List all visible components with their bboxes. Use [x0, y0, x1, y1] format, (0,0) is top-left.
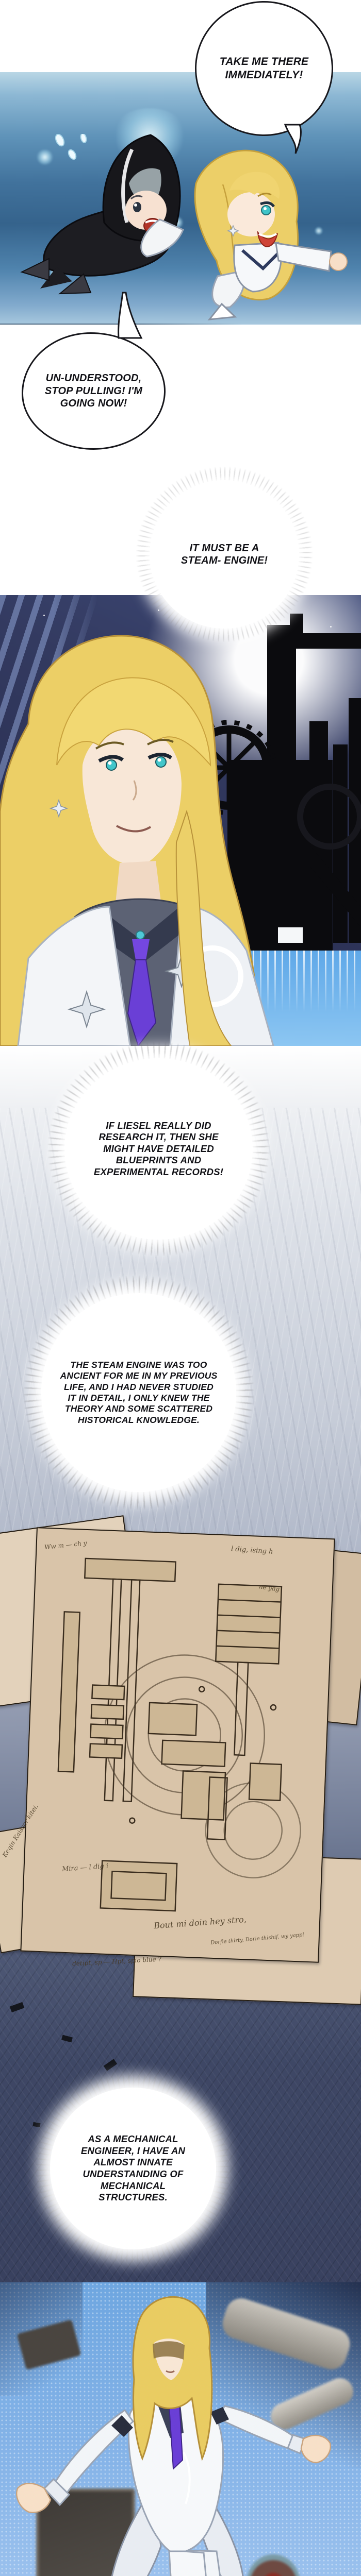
bubble-tail	[281, 124, 305, 156]
burst-core: IT MUST BE A STEAM- ENGINE!	[150, 480, 299, 629]
panel-factory-reveal	[0, 595, 361, 1046]
dialogue-text: IT MUST BE A STEAM- ENGINE!	[180, 542, 268, 567]
sweat-drop-icon	[54, 134, 88, 161]
burst-bubble-steam-engine: IT MUST BE A STEAM- ENGINE!	[133, 464, 316, 645]
burst-core: THE STEAM ENGINE WAS TOO ANCIENT FOR ME …	[41, 1293, 237, 1492]
bubble-tail	[114, 292, 143, 339]
burst-bubble-liesel: IF LIESEL REALLY DID RESEARCH IT, THEN S…	[44, 1038, 273, 1260]
engineer-figure	[0, 2282, 361, 2576]
blueprint-paper-main	[20, 1527, 335, 1963]
dialogue-text: IF LIESEL REALLY DID RESEARCH IT, THEN S…	[90, 1120, 227, 1178]
dialogue-text: THE STEAM ENGINE WAS TOO ANCIENT FOR ME …	[59, 1360, 218, 1426]
speech-bubble-understood: UN-UNDERSTOOD, STOP PULLING! I'M GOING N…	[22, 332, 166, 450]
engineer-portrait	[0, 595, 361, 1046]
webtoon-page: TAKE ME THERE IMMEDIATELY! UN-UNDERSTOOD…	[0, 0, 361, 2576]
chibi-characters	[0, 134, 361, 325]
panel-walk	[0, 2282, 361, 2576]
dialogue-text: AS A MECHANICAL ENGINEER, I HAVE AN ALMO…	[78, 2133, 189, 2203]
speech-bubble-take-me: TAKE ME THERE IMMEDIATELY!	[195, 1, 333, 136]
blueprint-schematic	[21, 1528, 334, 1961]
burst-core: IF LIESEL REALLY DID RESEARCH IT, THEN S…	[64, 1058, 253, 1240]
dialogue-text: TAKE ME THERE IMMEDIATELY!	[210, 55, 318, 81]
nun-chibi	[22, 134, 180, 294]
burst-bubble-mechanical: AS A MECHANICAL ENGINEER, I HAVE AN ALMO…	[32, 2070, 234, 2267]
burst-core: AS A MECHANICAL ENGINEER, I HAVE AN ALMO…	[50, 2088, 216, 2249]
dialogue-text: UN-UNDERSTOOD, STOP PULLING! I'M GOING N…	[38, 372, 150, 410]
burst-bubble-ancient: THE STEAM ENGINE WAS TOO ANCIENT FOR ME …	[20, 1272, 258, 1514]
